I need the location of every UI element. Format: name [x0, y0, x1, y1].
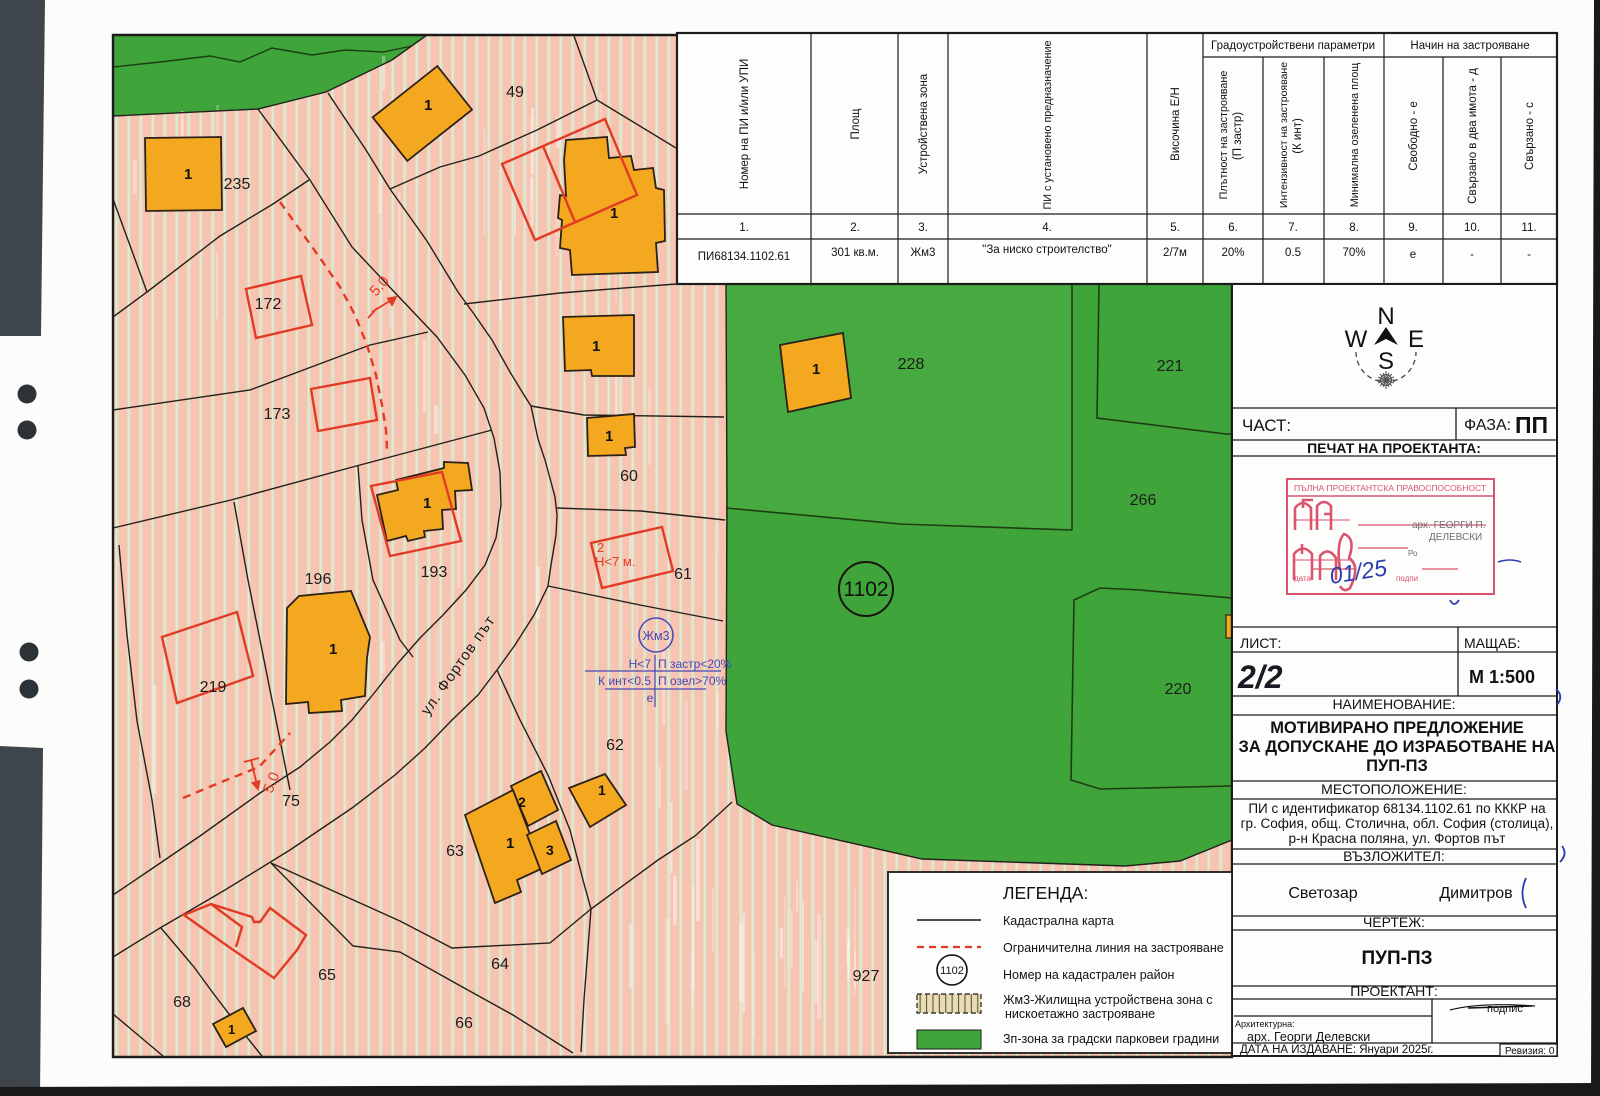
svg-text:193: 193	[421, 564, 448, 581]
svg-text:1102: 1102	[940, 965, 964, 977]
svg-text:е: е	[1410, 249, 1416, 261]
svg-text:Светозар: Светозар	[1288, 885, 1357, 902]
svg-text:2/2: 2/2	[1237, 659, 1283, 695]
svg-text:1.: 1.	[739, 222, 749, 234]
svg-text:11.: 11.	[1521, 222, 1536, 234]
svg-text:Зп-зона за градски парковеи гр: Зп-зона за градски парковеи градини	[1003, 1032, 1219, 1046]
svg-text:Свързано - с: Свързано - с	[1524, 102, 1536, 170]
svg-text:МЕСТОПОЛОЖЕНИЕ:: МЕСТОПОЛОЖЕНИЕ:	[1321, 781, 1467, 797]
svg-text:68: 68	[173, 994, 191, 1011]
svg-text:2/7м: 2/7м	[1163, 247, 1187, 259]
svg-text:173: 173	[264, 406, 291, 423]
svg-text:ПЕЧАТ НА ПРОЕКТАНТА:: ПЕЧАТ НА ПРОЕКТАНТА:	[1307, 440, 1481, 456]
svg-text:П застр<20%: П застр<20%	[658, 657, 732, 671]
svg-text:е: е	[647, 691, 654, 705]
svg-text:дата: дата	[1294, 574, 1312, 583]
svg-text:Устройствена зона: Устройствена зона	[918, 73, 930, 174]
svg-text:ПИ с установено предназначение: ПИ с установено предназначение	[1042, 40, 1054, 209]
svg-text:219: 219	[200, 679, 227, 696]
svg-text:3: 3	[546, 842, 554, 858]
svg-text:Димитров: Димитров	[1439, 885, 1512, 902]
svg-text:ДЕЛЕВСКИ: ДЕЛЕВСКИ	[1429, 532, 1482, 543]
svg-text:Жм3: Жм3	[642, 629, 669, 643]
svg-text:172: 172	[255, 296, 282, 313]
svg-text:ЧАСТ:: ЧАСТ:	[1242, 416, 1291, 435]
svg-text:Плътност на застрояване: Плътност на застрояване	[1218, 71, 1230, 200]
svg-text:S: S	[1378, 348, 1394, 375]
svg-text:20%: 20%	[1221, 247, 1244, 259]
svg-text:-: -	[1527, 249, 1531, 261]
svg-text:65: 65	[318, 967, 336, 984]
svg-text:ПУП-ПЗ: ПУП-ПЗ	[1366, 757, 1428, 775]
svg-text:1: 1	[228, 1022, 235, 1037]
svg-text:Номер на кадастрален район: Номер на кадастрален район	[1003, 968, 1175, 982]
svg-text:Жм3: Жм3	[911, 247, 936, 259]
svg-text:Площ: Площ	[850, 108, 862, 140]
svg-text:Н<7 м.: Н<7 м.	[595, 554, 635, 569]
svg-text:49: 49	[506, 84, 524, 101]
svg-text:гр. София, общ. Столична, обл: гр. София, общ. Столична, обл. София (ст…	[1241, 816, 1554, 831]
svg-text:ЛИСТ:: ЛИСТ:	[1240, 635, 1281, 651]
svg-text:Кадастрална карта: Кадастрална карта	[1003, 914, 1114, 928]
svg-text:П озел>70%: П озел>70%	[658, 674, 726, 688]
svg-text:Н<7: Н<7	[629, 657, 652, 671]
svg-text:Номер на ПИ и/или УПИ: Номер на ПИ и/или УПИ	[739, 59, 751, 189]
svg-text:Свързано в два имота - д: Свързано в два имота - д	[1467, 68, 1479, 204]
svg-text:1: 1	[506, 835, 514, 852]
svg-text:ПИ68134.1102.61: ПИ68134.1102.61	[698, 251, 790, 263]
svg-text:Ограничителна линия на застроя: Ограничителна линия на застрояване	[1003, 941, 1224, 955]
svg-text:МАЩАБ:: МАЩАБ:	[1464, 635, 1521, 651]
svg-text:ПИ с идентификатор 68134.1102.: ПИ с идентификатор 68134.1102.61 по КККР…	[1248, 801, 1546, 816]
svg-text:62: 62	[606, 737, 624, 754]
svg-text:W: W	[1345, 326, 1368, 353]
svg-text:ВЪЗЛОЖИТЕЛ:: ВЪЗЛОЖИТЕЛ:	[1343, 848, 1445, 864]
svg-text:подпи: подпи	[1396, 574, 1418, 583]
svg-text:-: -	[1470, 249, 1474, 261]
svg-text:ПП: ПП	[1515, 412, 1548, 438]
svg-text:75: 75	[282, 793, 300, 810]
svg-text:N: N	[1377, 303, 1394, 330]
svg-text:266: 266	[1130, 492, 1157, 509]
svg-text:Интензивност на застрояване: Интензивност на застрояване	[1278, 62, 1290, 208]
svg-text:E: E	[1408, 326, 1424, 353]
svg-text:(К инт): (К инт)	[1292, 118, 1304, 154]
svg-text:Ро: Ро	[1408, 549, 1418, 558]
svg-text:2: 2	[518, 794, 526, 810]
svg-text:1: 1	[598, 782, 606, 798]
svg-text:(П застр): (П застр)	[1232, 112, 1244, 160]
svg-text:60: 60	[620, 468, 638, 485]
svg-text:221: 221	[1157, 358, 1184, 375]
svg-text:НАИМЕНОВАНИЕ:: НАИМЕНОВАНИЕ:	[1332, 696, 1455, 712]
svg-text:ПРОЕКТАНТ:: ПРОЕКТАНТ:	[1350, 983, 1437, 999]
svg-text:ЧЕРТЕЖ:: ЧЕРТЕЖ:	[1363, 914, 1425, 930]
svg-text:2.: 2.	[850, 222, 860, 234]
svg-text:70%: 70%	[1342, 247, 1365, 259]
svg-text:1: 1	[424, 97, 432, 114]
svg-text:10.: 10.	[1464, 222, 1480, 234]
svg-text:8.: 8.	[1349, 222, 1359, 234]
svg-text:6.: 6.	[1228, 222, 1238, 234]
svg-text:7.: 7.	[1288, 222, 1298, 234]
svg-text:М 1:500: М 1:500	[1469, 667, 1535, 687]
svg-text:ЗА ДОПУСКАНЕ ДО ИЗРАБОТВАНЕ НА: ЗА ДОПУСКАНЕ ДО ИЗРАБОТВАНЕ НА	[1239, 738, 1556, 756]
svg-text:220: 220	[1165, 681, 1192, 698]
svg-text:0.5: 0.5	[1285, 247, 1301, 259]
svg-text:Градоустройствени параметри: Градоустройствени параметри	[1211, 40, 1375, 52]
svg-text:"За ниско строителство": "За ниско строителство"	[982, 244, 1111, 256]
svg-text:1: 1	[423, 495, 431, 512]
svg-text:63: 63	[446, 843, 464, 860]
svg-text:Свободно - е: Свободно - е	[1408, 101, 1420, 170]
svg-text:4.: 4.	[1042, 222, 1052, 234]
svg-text:64: 64	[491, 956, 509, 973]
svg-text:К инт<0.5: К инт<0.5	[598, 674, 651, 688]
svg-text:ДАТА НА ИЗДАВАНЕ: Януари 2025г: ДАТА НА ИЗДАВАНЕ: Януари 2025г.	[1240, 1044, 1434, 1056]
svg-text:301 кв.м.: 301 кв.м.	[831, 247, 879, 259]
svg-text:Архитектурна:: Архитектурна:	[1235, 1019, 1295, 1029]
svg-text:нискоетажно застрояване: нискоетажно застрояване	[1005, 1007, 1155, 1021]
svg-text:1: 1	[812, 361, 820, 378]
svg-text:ЛЕГЕНДА:: ЛЕГЕНДА:	[1003, 883, 1088, 903]
svg-text:Жм3-Жилищна устройствена зона: Жм3-Жилищна устройствена зона с	[1003, 993, 1213, 1007]
svg-text:р-н Красна поляна, ул. Фортов: р-н Красна поляна, ул. Фортов път	[1289, 831, 1506, 846]
svg-text:1: 1	[605, 428, 613, 445]
svg-text:арх. Георги Делевски: арх. Георги Делевски	[1247, 1030, 1370, 1044]
svg-text:5.: 5.	[1170, 222, 1180, 234]
svg-text:Начин на застрояване: Начин на застрояване	[1410, 40, 1529, 52]
svg-text:61: 61	[674, 566, 692, 583]
svg-text:Минимална озеленена площ: Минимална озеленена площ	[1349, 63, 1361, 208]
svg-text:Ревизия: 0: Ревизия: 0	[1505, 1046, 1555, 1057]
svg-text:927: 927	[853, 968, 880, 985]
svg-text:196: 196	[305, 571, 332, 588]
svg-text:1: 1	[184, 166, 192, 183]
svg-text:ПУП-ПЗ: ПУП-ПЗ	[1361, 948, 1432, 969]
svg-text:1: 1	[329, 641, 337, 658]
svg-text:2: 2	[597, 540, 604, 555]
svg-text:ФАЗА:: ФАЗА:	[1464, 417, 1511, 434]
svg-text:Височина Е/Н: Височина Е/Н	[1170, 87, 1182, 161]
svg-text:3.: 3.	[918, 222, 928, 234]
svg-text:МОТИВИРАНО ПРЕДЛОЖЕНИЕ: МОТИВИРАНО ПРЕДЛОЖЕНИЕ	[1270, 719, 1524, 737]
svg-text:235: 235	[224, 176, 251, 193]
svg-text:66: 66	[455, 1015, 473, 1032]
svg-text:ПЪЛНА ПРОЕКТАНТСКА ПРАВОСПОСОБ: ПЪЛНА ПРОЕКТАНТСКА ПРАВОСПОСОБНОСТ	[1294, 483, 1486, 493]
svg-text:228: 228	[898, 356, 925, 373]
svg-text:1102: 1102	[843, 578, 888, 601]
svg-text:9.: 9.	[1408, 222, 1418, 234]
svg-text:1: 1	[592, 338, 600, 355]
svg-text:арх. ГЕОРГИ П.: арх. ГЕОРГИ П.	[1412, 520, 1485, 531]
